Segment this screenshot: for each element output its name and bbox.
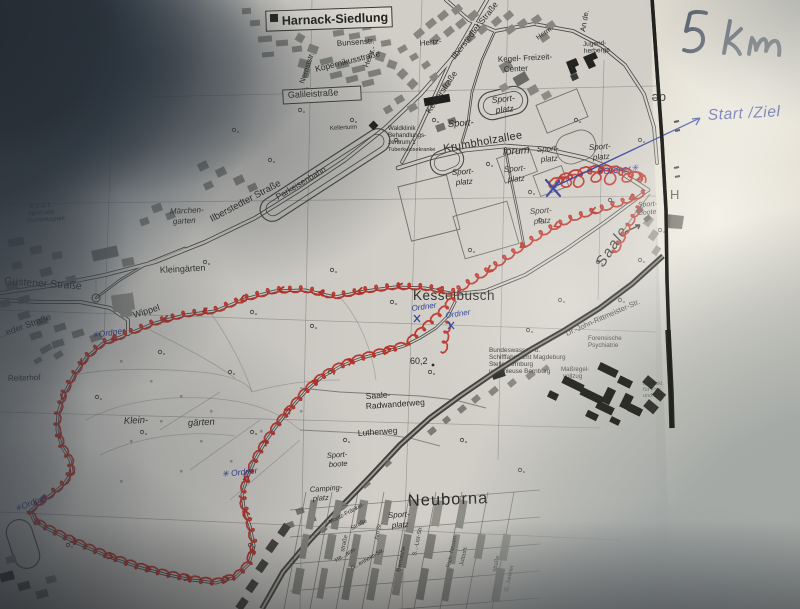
svg-text:60,2: 60,2 [410, 356, 428, 366]
svg-text:Sport-: Sport- [388, 509, 411, 520]
svg-text:platz: platz [494, 103, 515, 115]
svg-text:herberge: herberge [584, 47, 611, 55]
svg-text:Sport-: Sport- [447, 117, 474, 130]
svg-text:Center: Center [504, 64, 529, 74]
